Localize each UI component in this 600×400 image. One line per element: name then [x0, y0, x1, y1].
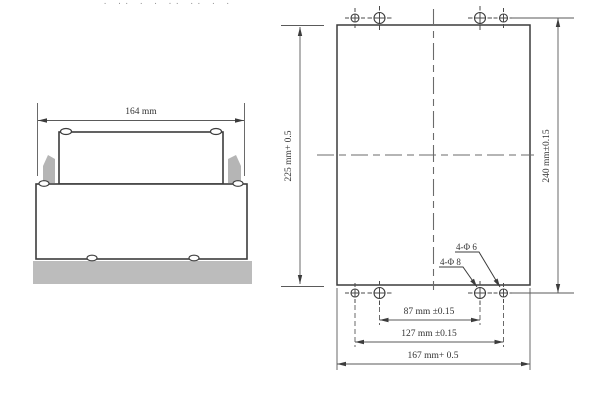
screw-bump: [233, 181, 243, 187]
arrowhead-up: [556, 18, 560, 27]
arrowhead-right: [471, 318, 480, 322]
arrowhead-left: [380, 318, 389, 322]
arrowhead-right: [235, 118, 244, 123]
front-view: 87 mm ±0.15 127 mm ±0.15 167 mm+ 0.5 225…: [281, 6, 574, 370]
screw-bump: [189, 255, 199, 261]
rear-case-outline: [59, 132, 223, 184]
arrowhead-right: [495, 340, 504, 344]
arrowhead-right: [521, 362, 530, 366]
arrowhead-left: [355, 340, 364, 344]
front-bezel-outline: [36, 184, 247, 259]
dim-label-167: 167 mm+ 0.5: [407, 351, 458, 361]
technical-drawing-page: · ·· · · ·· ·· · ·: [0, 0, 600, 400]
dim-label-225: 225 mm+ 0.5: [284, 130, 294, 181]
screw-bump: [211, 129, 222, 135]
arrowhead-left: [337, 362, 346, 366]
screw-bump: [87, 255, 97, 261]
right-mounting-clip: [228, 155, 241, 183]
mounting-hole-phi6: [494, 283, 514, 303]
screw-bump: [61, 129, 72, 135]
arrowhead-up: [298, 27, 302, 36]
dim-label-127: 127 mm ±0.15: [401, 329, 457, 339]
screw-bump: [39, 181, 49, 187]
mounting-hole-phi6: [345, 283, 365, 303]
left-mounting-clip: [43, 155, 55, 183]
cropped-text-artifact: · ·· · · ·· ·· · ·: [103, 0, 233, 8]
dim-label-87: 87 mm ±0.15: [404, 307, 455, 317]
callout-label-phi8: 4-Φ 8: [440, 257, 461, 267]
dimension-drawing: 164 mm: [0, 0, 600, 400]
arrowhead-left: [38, 118, 47, 123]
callout-label-phi6: 4-Φ 6: [456, 242, 477, 252]
side-view: 164 mm: [33, 103, 252, 284]
dim-label-240: 240 mm±0.15: [542, 129, 552, 182]
dim-label-164: 164 mm: [125, 107, 157, 117]
arrowhead-down: [556, 284, 560, 293]
panel-slab: [33, 261, 252, 284]
arrowhead-down: [298, 275, 302, 284]
